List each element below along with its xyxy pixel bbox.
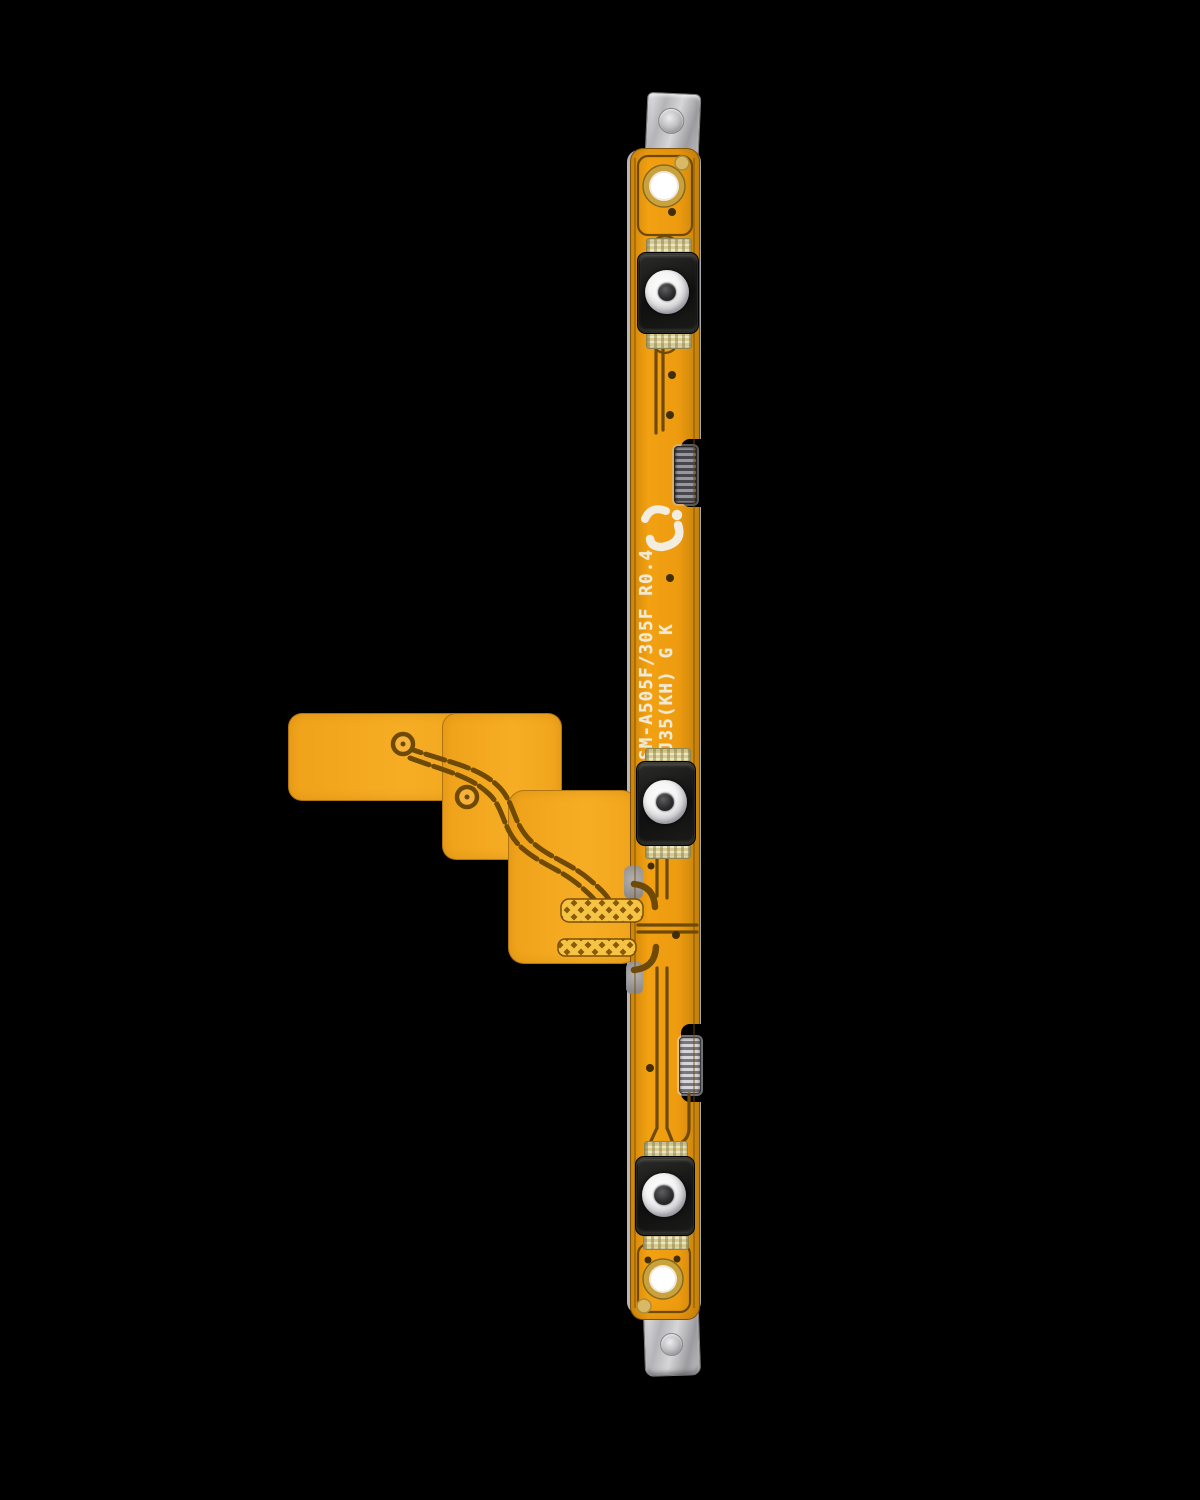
switch3-plunger [654, 1185, 674, 1205]
trace-overlay [0, 0, 1200, 1500]
fiducial-top [675, 156, 689, 170]
tactile-switch-top [637, 252, 699, 334]
manufacturer-logo [645, 509, 682, 547]
junction-corner-arcs [634, 884, 656, 970]
fiducial-bottom [637, 1299, 651, 1313]
screw-hole-bottom [643, 1259, 683, 1299]
test-pad-rings [393, 734, 477, 807]
silkscreen-text-line2: RJ35(KH) G K [657, 623, 677, 764]
branch-traces [402, 746, 612, 914]
screw-hole-top [643, 165, 685, 207]
tactile-switch-middle [636, 761, 696, 846]
switch2-plunger [656, 793, 674, 811]
switch1-plunger [658, 283, 676, 301]
photo-stage: SM-A505F/305F R0.4 RJ35(KH) G K [0, 0, 1200, 1500]
crosshatch-bands [558, 899, 643, 956]
tactile-switch-bottom [635, 1156, 695, 1236]
silkscreen-text-line1: SM-A505F/305F R0.4 [637, 549, 657, 760]
